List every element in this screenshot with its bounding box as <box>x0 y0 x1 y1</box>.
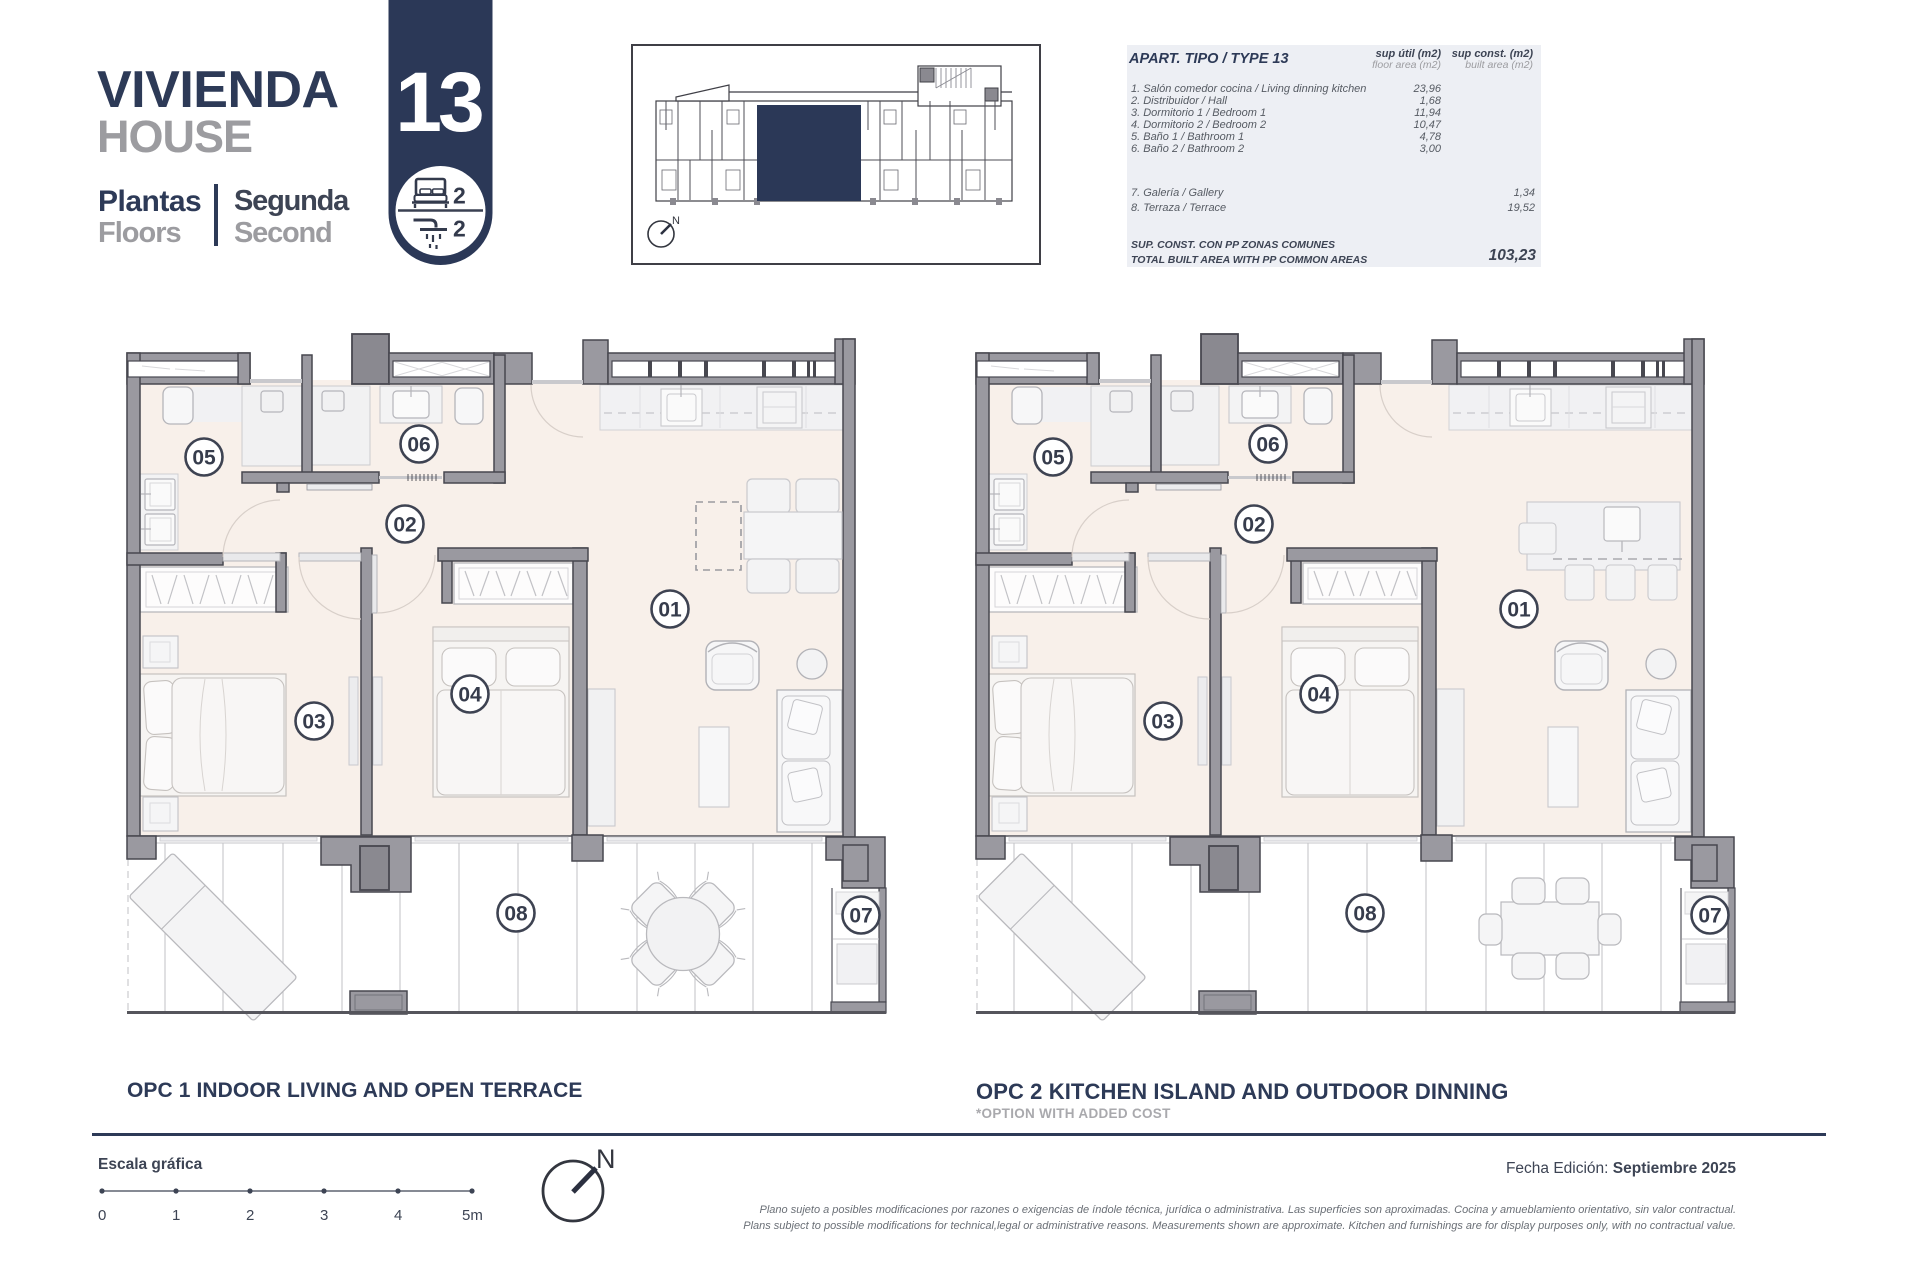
svg-text:0: 0 <box>98 1207 106 1224</box>
svg-text:N: N <box>596 1144 616 1174</box>
svg-text:5m: 5m <box>462 1207 483 1224</box>
svg-text:4: 4 <box>394 1207 402 1224</box>
svg-text:3: 3 <box>320 1207 328 1224</box>
svg-text:1: 1 <box>172 1207 180 1224</box>
svg-text:2: 2 <box>246 1207 254 1224</box>
